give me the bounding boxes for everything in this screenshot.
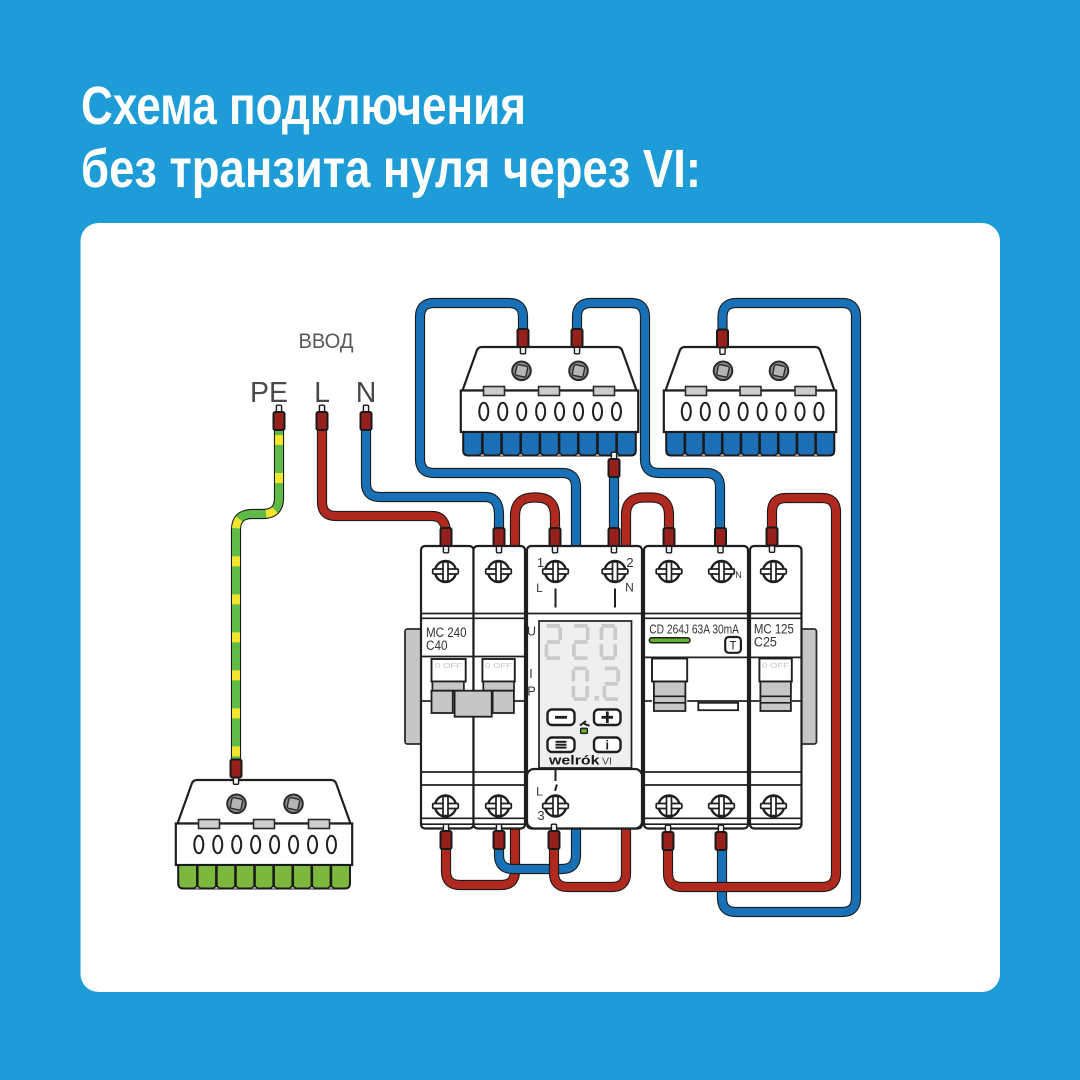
svg-text:N: N: [356, 377, 377, 409]
svg-text:без транзита нуля через VI:: без транзита нуля через VI:: [81, 139, 701, 199]
svg-text:welrók: welrók: [548, 753, 601, 768]
svg-text:0 OFF: 0 OFF: [485, 661, 513, 670]
svg-text:Схема подключения: Схема подключения: [81, 76, 526, 136]
svg-text:2: 2: [626, 555, 633, 570]
svg-text:L: L: [314, 377, 330, 409]
svg-text:CD 264J 63A 30mA: CD 264J 63A 30mA: [649, 623, 739, 637]
svg-text:N: N: [625, 581, 634, 595]
svg-text:0 OFF: 0 OFF: [435, 661, 463, 670]
svg-text:I: I: [529, 667, 532, 681]
svg-text:N: N: [735, 570, 742, 580]
svg-text:1: 1: [537, 555, 544, 570]
svg-text:P: P: [527, 685, 535, 699]
svg-text:C25: C25: [754, 634, 777, 649]
svg-text:T: T: [729, 641, 736, 653]
svg-text:i: i: [606, 739, 609, 753]
svg-text:C40: C40: [426, 638, 448, 653]
svg-text:3: 3: [537, 808, 544, 823]
svg-text:L: L: [536, 785, 543, 799]
svg-text:PE: PE: [250, 377, 288, 409]
svg-text:VI: VI: [602, 756, 612, 768]
svg-text:L: L: [536, 581, 543, 595]
svg-text:0 OFF: 0 OFF: [762, 661, 790, 670]
svg-text:U: U: [527, 625, 536, 639]
svg-text:ВВОД: ВВОД: [299, 330, 354, 353]
